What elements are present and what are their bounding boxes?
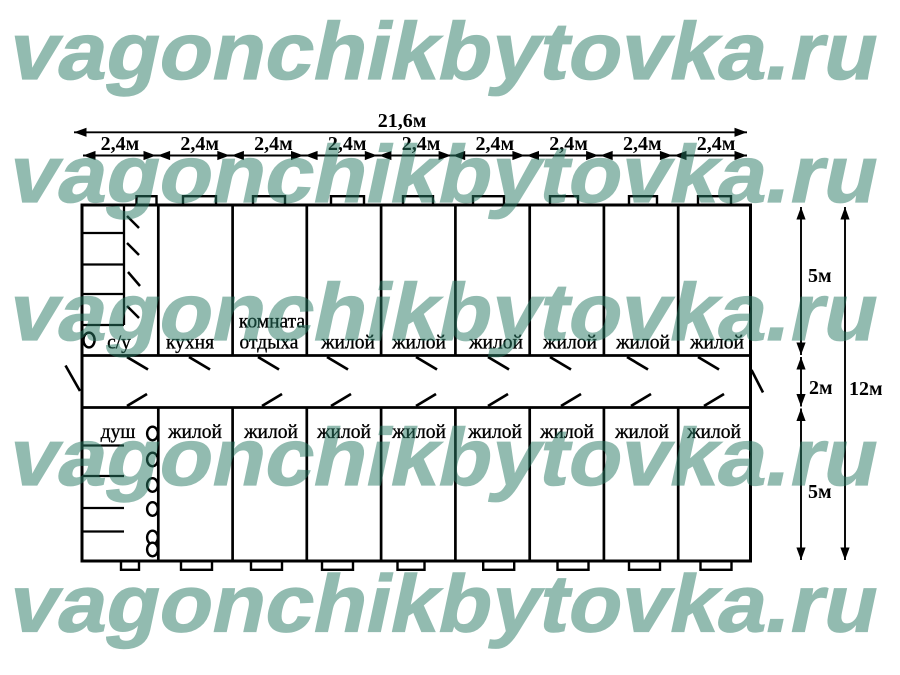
svg-text:vagonchikbytovka.ru: vagonchikbytovka.ru [2, 413, 888, 503]
svg-text:vagonchikbytovka.ru: vagonchikbytovka.ru [2, 7, 888, 97]
svg-text:vagonchikbytovka.ru: vagonchikbytovka.ru [2, 268, 888, 358]
svg-text:12м: 12м [849, 378, 883, 400]
svg-text:21,6м: 21,6м [378, 110, 427, 132]
svg-text:2м: 2м [809, 377, 833, 399]
svg-text:vagonchikbytovka.ru: vagonchikbytovka.ru [2, 130, 888, 220]
svg-text:vagonchikbytovka.ru: vagonchikbytovka.ru [2, 559, 888, 649]
